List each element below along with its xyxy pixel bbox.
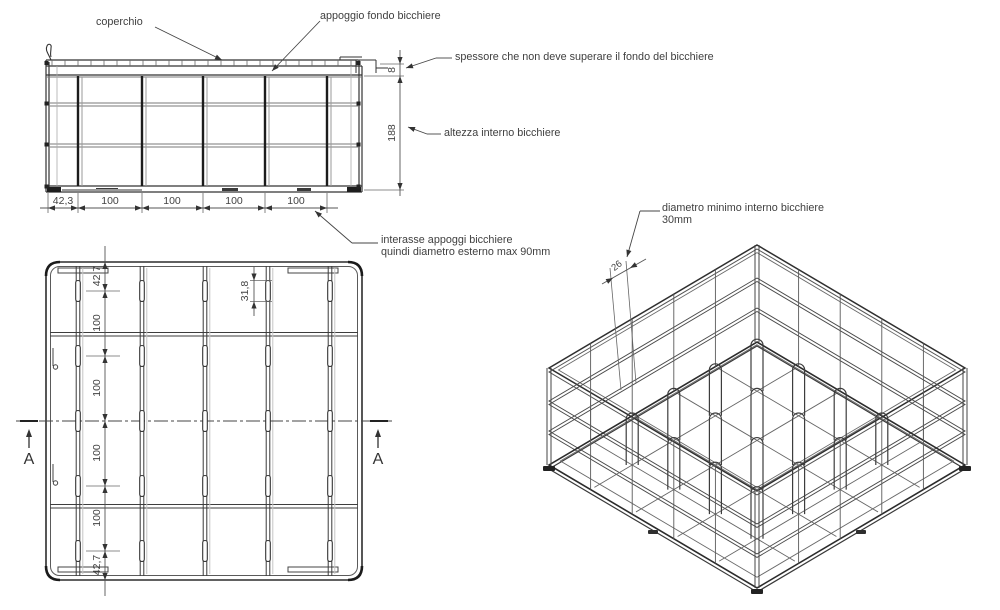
section-label-a-right: A: [373, 451, 384, 469]
iso-view-linework: [543, 245, 971, 594]
section-label-a-left: A: [24, 451, 35, 469]
dim-front-height-188: 188: [386, 124, 398, 142]
label-interasse-line2: quindi diametro esterno max 90mm: [381, 246, 550, 258]
dim-front-100-4: 100: [287, 195, 305, 207]
dim-top-42-7-bottom: 42,7: [91, 555, 103, 575]
front-view-linework: [45, 44, 389, 192]
label-interasse: interasse appoggi bicchiere quindi diame…: [381, 234, 550, 258]
dim-front-thickness-8: 8: [386, 67, 398, 73]
label-spessore: spessore che non deve superare il fondo …: [455, 51, 714, 63]
drawing-linework: [0, 0, 1000, 610]
dim-top-100-4: 100: [91, 509, 103, 527]
dim-front-42-3: 42,3: [53, 195, 73, 207]
dim-front-100-2: 100: [163, 195, 181, 207]
top-view-linework: [16, 262, 392, 580]
dim-top-42-7-top: 42,7: [91, 266, 103, 286]
dim-front-100-1: 100: [101, 195, 119, 207]
dim-top-slot-31-8: 31,8: [239, 281, 251, 301]
dim-top-100-2: 100: [91, 379, 103, 397]
label-interasse-line1: interasse appoggi bicchiere: [381, 234, 550, 246]
label-diametro-minimo: diametro minimo interno bicchiere 30mm: [662, 202, 824, 226]
dim-front-100-3: 100: [225, 195, 243, 207]
label-appoggio-fondo-bicchiere: appoggio fondo bicchiere: [320, 10, 441, 22]
label-coperchio: coperchio: [96, 16, 143, 28]
label-altezza-interno: altezza interno bicchiere: [444, 127, 560, 139]
dim-top-100-3: 100: [91, 444, 103, 462]
label-diametro-line2: 30mm: [662, 214, 824, 226]
annotation-linework: [20, 21, 660, 596]
label-diametro-line1: diametro minimo interno bicchiere: [662, 202, 824, 214]
technical-drawing-canvas: coperchio appoggio fondo bicchiere spess…: [0, 0, 1000, 610]
dim-top-100-1: 100: [91, 314, 103, 332]
